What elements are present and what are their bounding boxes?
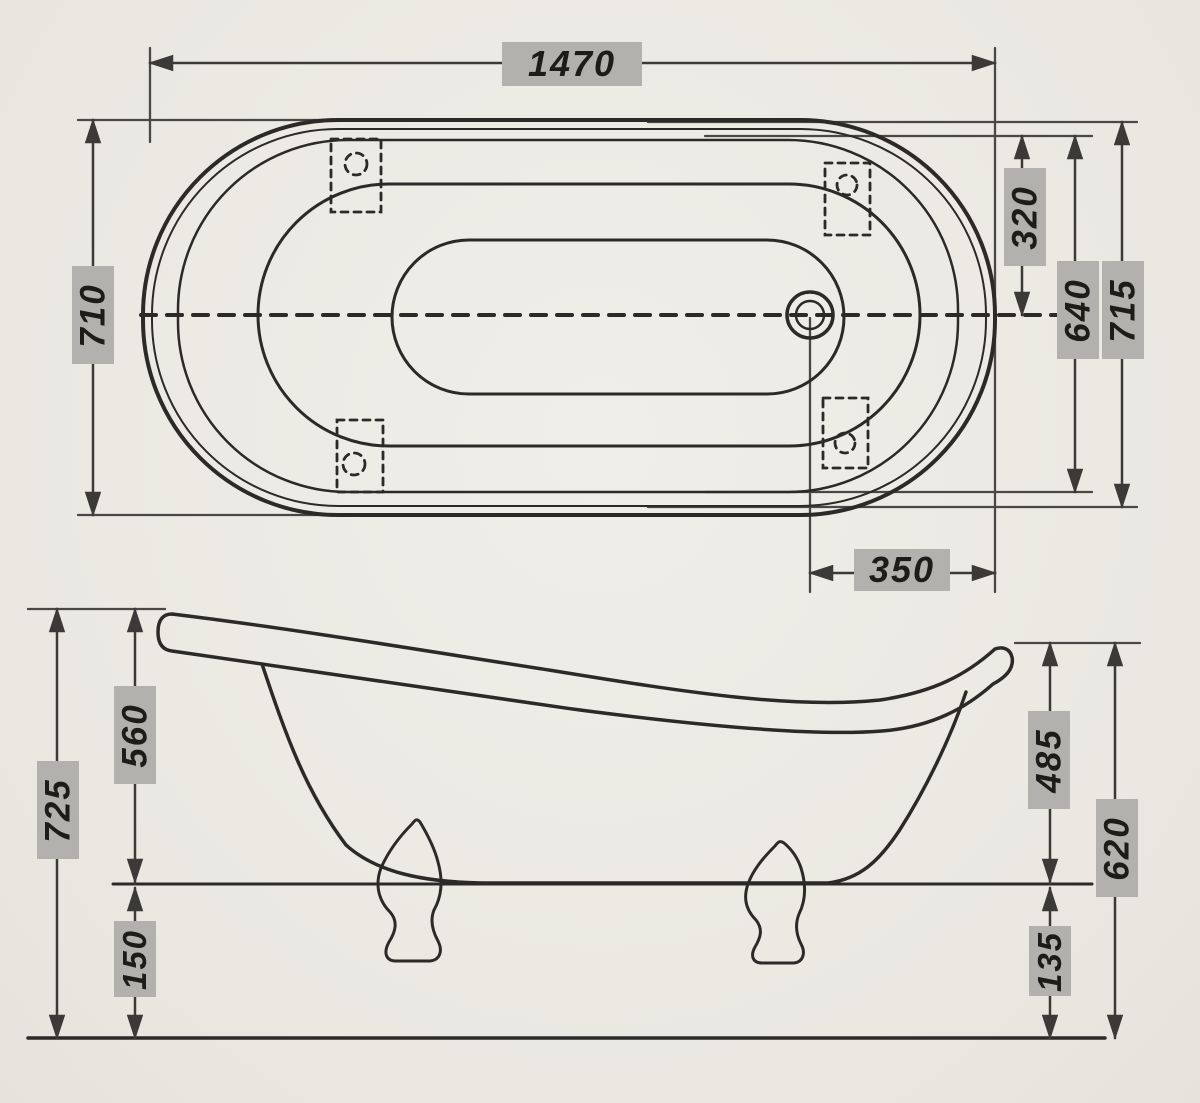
arrowhead <box>87 122 100 142</box>
foot-bolt-top-left <box>345 153 367 175</box>
dim-value: 710 <box>76 283 111 347</box>
dim-label-overall-length: 1470 <box>502 42 642 86</box>
dim-value: 715 <box>1106 278 1141 342</box>
arrowhead <box>129 890 142 910</box>
dim-value: 560 <box>118 703 153 767</box>
tub-side-rim-profile <box>158 614 1012 732</box>
arrowhead <box>1016 138 1029 158</box>
arrowhead <box>51 611 64 631</box>
arrowhead <box>812 567 832 580</box>
dim-label-total-height-right: 620 <box>1096 799 1138 897</box>
dim-label-drain-to-end: 350 <box>854 549 950 591</box>
dim-label-inner-rim-width: 640 <box>1057 261 1099 359</box>
arrowhead <box>1016 293 1029 313</box>
arrowhead <box>1116 485 1129 505</box>
drawing-sheet: 1470 710 320 640 715 350 725 560 150 485… <box>0 0 1200 1103</box>
arrowhead <box>129 1016 142 1036</box>
arrowhead <box>51 1016 64 1036</box>
foot-bolt-bottom-left <box>343 453 365 475</box>
arrowhead <box>152 57 172 70</box>
dim-label-total-height-left: 725 <box>37 761 79 859</box>
arrowhead <box>1044 860 1057 880</box>
dim-value: 725 <box>41 778 76 842</box>
dim-value: 640 <box>1061 278 1096 342</box>
arrowhead <box>1109 1016 1122 1036</box>
arrowhead <box>129 860 142 880</box>
claw-foot-right <box>746 842 805 963</box>
dim-label-rim-to-underside-left: 560 <box>114 686 156 784</box>
dim-value: 320 <box>1008 185 1043 249</box>
side-view <box>28 609 1140 1038</box>
tub-side-bowl-profile <box>262 664 966 883</box>
tub-outer-rim-inner-line <box>152 129 986 506</box>
arrowhead <box>1069 470 1082 490</box>
arrowhead <box>1116 124 1129 144</box>
dim-value: 485 <box>1032 728 1067 792</box>
foot-bolt-top-right <box>837 175 857 195</box>
dim-value: 620 <box>1100 816 1135 880</box>
claw-foot-left <box>378 820 441 961</box>
arrowhead <box>1044 645 1057 665</box>
foot-bolt-bottom-right <box>835 433 855 453</box>
arrowhead <box>1044 890 1057 910</box>
arrowhead <box>1044 1016 1057 1036</box>
arrowhead <box>1109 645 1122 665</box>
dim-label-edge-to-drain: 320 <box>1004 168 1046 266</box>
dim-label-rim-to-underside-right: 485 <box>1028 711 1070 809</box>
dim-label-underside-to-floor-right: 135 <box>1029 926 1071 996</box>
arrowhead <box>973 57 993 70</box>
bathtub-technical-drawing <box>0 0 1200 1103</box>
arrowhead <box>1069 138 1082 158</box>
extension-lines-side-view <box>28 609 1140 643</box>
dim-label-overall-width-right: 715 <box>1102 261 1144 359</box>
tub-outer-rim-contour <box>143 120 995 515</box>
dim-label-underside-to-floor-left: 150 <box>114 921 156 997</box>
top-view <box>78 48 1137 592</box>
arrowhead <box>129 611 142 631</box>
dim-value: 135 <box>1034 930 1067 991</box>
arrowhead <box>973 567 993 580</box>
dim-label-overall-width-left: 710 <box>72 266 114 364</box>
dim-value: 150 <box>119 928 152 989</box>
arrowhead <box>87 493 100 513</box>
